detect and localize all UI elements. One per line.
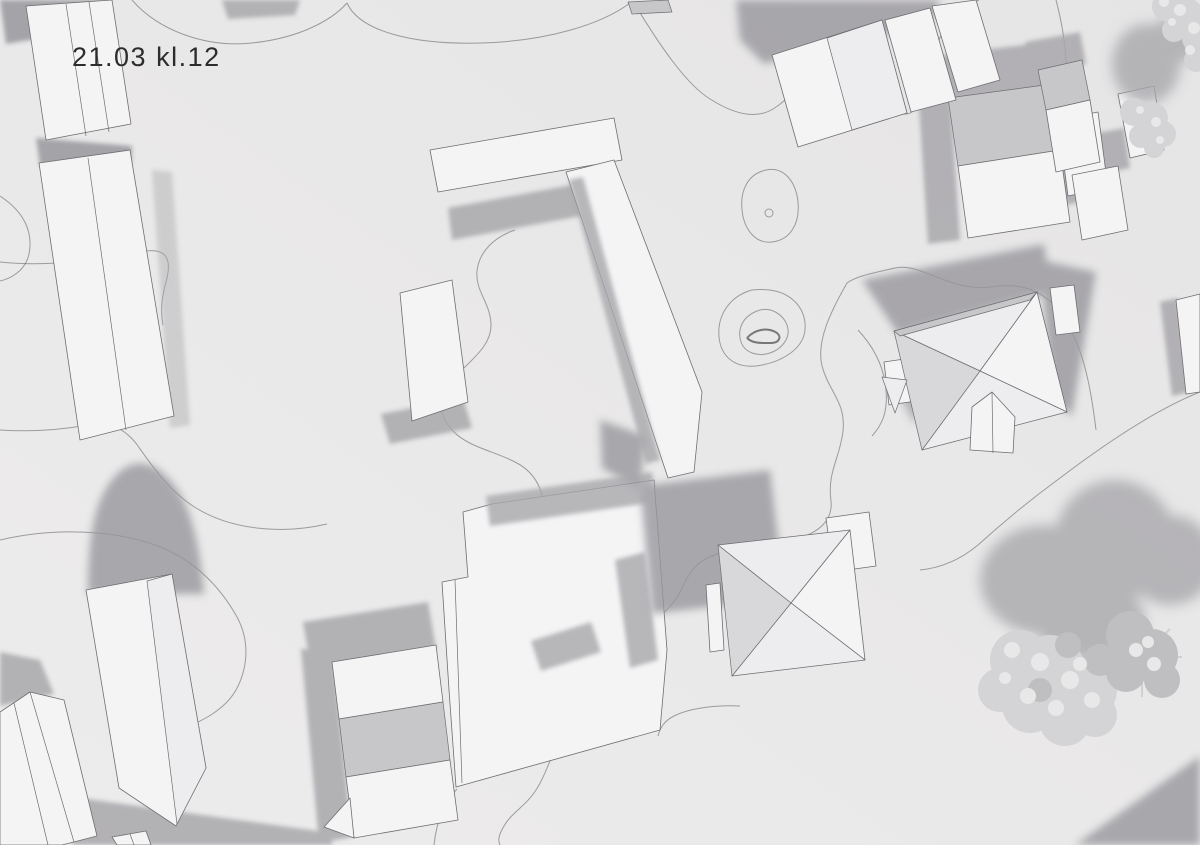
tree-highlight [1168, 18, 1176, 26]
date-time-label: 21.03 kl.12 [72, 42, 221, 72]
tree-highlight [1129, 643, 1143, 657]
tree-highlight [1020, 688, 1036, 704]
roof-lit-face [958, 150, 1070, 238]
tree-highlight [1156, 136, 1164, 144]
tree-highlight [1151, 117, 1161, 127]
tree-highlight [1185, 45, 1195, 55]
tree-highlight [999, 672, 1011, 684]
shadow-study-site-plan: 21.03 kl.12 [0, 0, 1200, 845]
tree-highlight [1174, 4, 1186, 16]
tree-highlight [1073, 657, 1087, 671]
tree-crown [978, 668, 1022, 712]
tree-highlight [1048, 700, 1064, 716]
tree-crown-shaded [1106, 652, 1146, 692]
tree-highlight [1061, 671, 1079, 689]
tree-highlight [1142, 636, 1154, 648]
tree-crown-shaded [1055, 632, 1081, 658]
tree-highlight [1136, 106, 1144, 114]
roof-slab [1072, 166, 1128, 240]
tree-highlight [1004, 642, 1020, 658]
tree-highlight [1031, 653, 1049, 671]
tree-highlight [1188, 22, 1200, 34]
tree-highlight [1084, 692, 1100, 708]
tree-highlight [1147, 657, 1161, 671]
roof-slab [1046, 100, 1100, 172]
wall-top-slab [628, 0, 672, 14]
building-south-gable [324, 645, 458, 838]
